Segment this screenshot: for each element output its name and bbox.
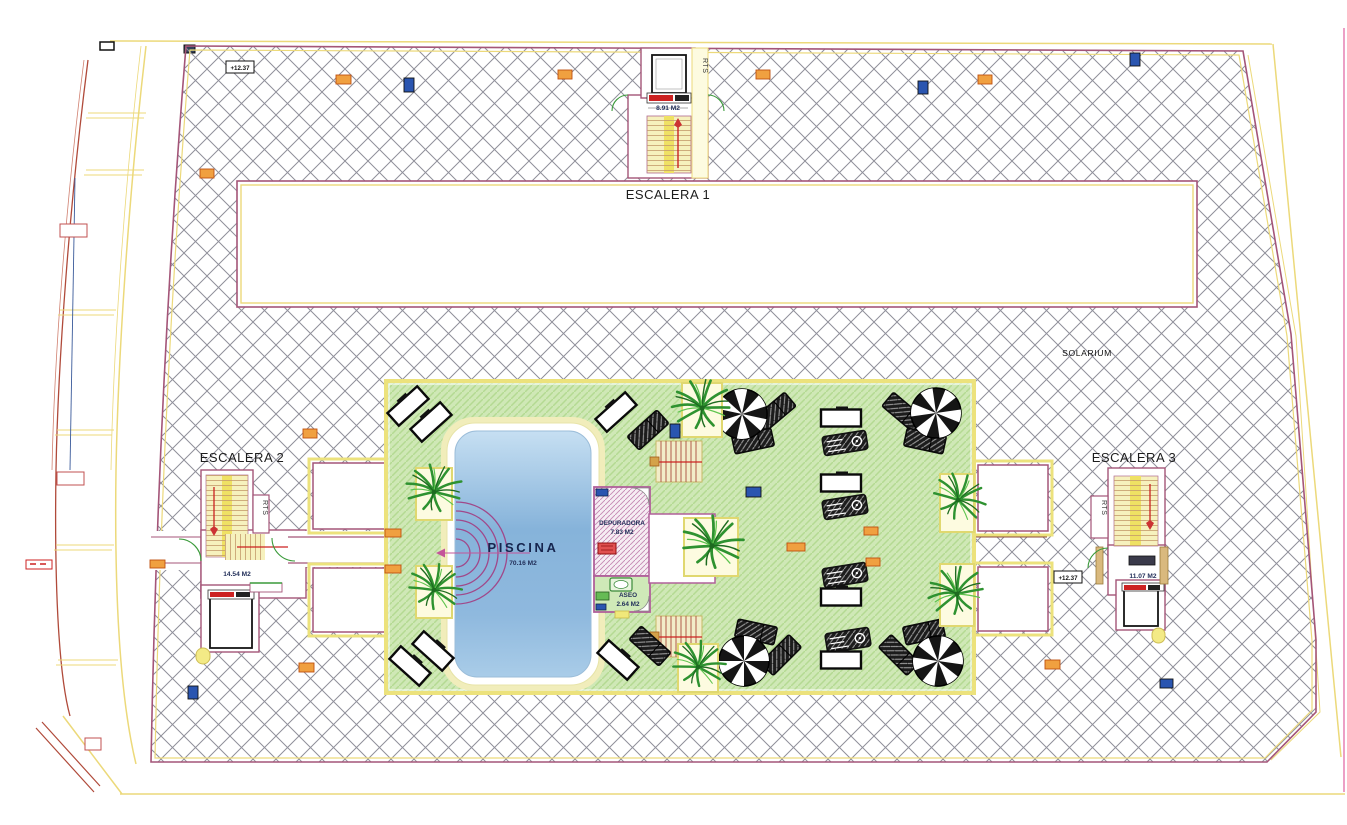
level-badge bbox=[1129, 556, 1155, 565]
aseo-area: 2.64 M2 bbox=[616, 601, 640, 608]
escalera-1-rts: RTS bbox=[701, 58, 708, 73]
floor-plan-canvas: ESCALERA 1 8.91 M2 RTS ESCALERA 2 14.54 … bbox=[0, 0, 1347, 825]
escalera-3-label: ESCALERA 3 bbox=[1092, 450, 1177, 465]
solarium-deck bbox=[385, 373, 993, 695]
piscina-label: PISCINA bbox=[488, 540, 559, 555]
elevator-1 bbox=[652, 55, 686, 93]
rooftop-vent-box bbox=[100, 42, 114, 50]
pump-symbol bbox=[598, 543, 616, 554]
escalera-2-label: ESCALERA 2 bbox=[200, 450, 285, 465]
roof-plan-drawing: ESCALERA 1 8.91 M2 RTS ESCALERA 2 14.54 … bbox=[0, 0, 1347, 825]
fixture-marker bbox=[596, 592, 609, 600]
drain-marker bbox=[596, 604, 606, 610]
elevation-value: +12.37 bbox=[1058, 575, 1078, 582]
aseo-label: ASEO bbox=[619, 592, 637, 599]
escalera-3-area: 11.07 M2 bbox=[1129, 573, 1156, 580]
escalera-3-rts: RTS bbox=[1100, 500, 1107, 515]
depuradora-area: 7.83 M2 bbox=[610, 529, 634, 536]
pergola-top bbox=[650, 441, 702, 482]
elevation-value: +12.37 bbox=[230, 65, 250, 72]
depuradora-label: DEPURADORA bbox=[599, 520, 645, 527]
elevator-2 bbox=[210, 598, 252, 648]
escalera-2-rts: RTS bbox=[261, 500, 268, 515]
escalera-1-label: ESCALERA 1 bbox=[626, 187, 711, 202]
escalera-1-area: 8.91 M2 bbox=[656, 105, 680, 112]
elevator-3 bbox=[1124, 590, 1158, 626]
drain-marker bbox=[596, 489, 608, 496]
solarium-label: SOLARIUM bbox=[1062, 348, 1112, 358]
elevation-tag-right: +12.37 bbox=[1054, 571, 1082, 583]
piscina-area: 70.16 M2 bbox=[509, 560, 537, 567]
roof-void-rectangle bbox=[237, 181, 1197, 307]
elevation-tag-top-left: +12.37 bbox=[226, 61, 254, 73]
escalera-2-area: 14.54 M2 bbox=[223, 571, 251, 578]
